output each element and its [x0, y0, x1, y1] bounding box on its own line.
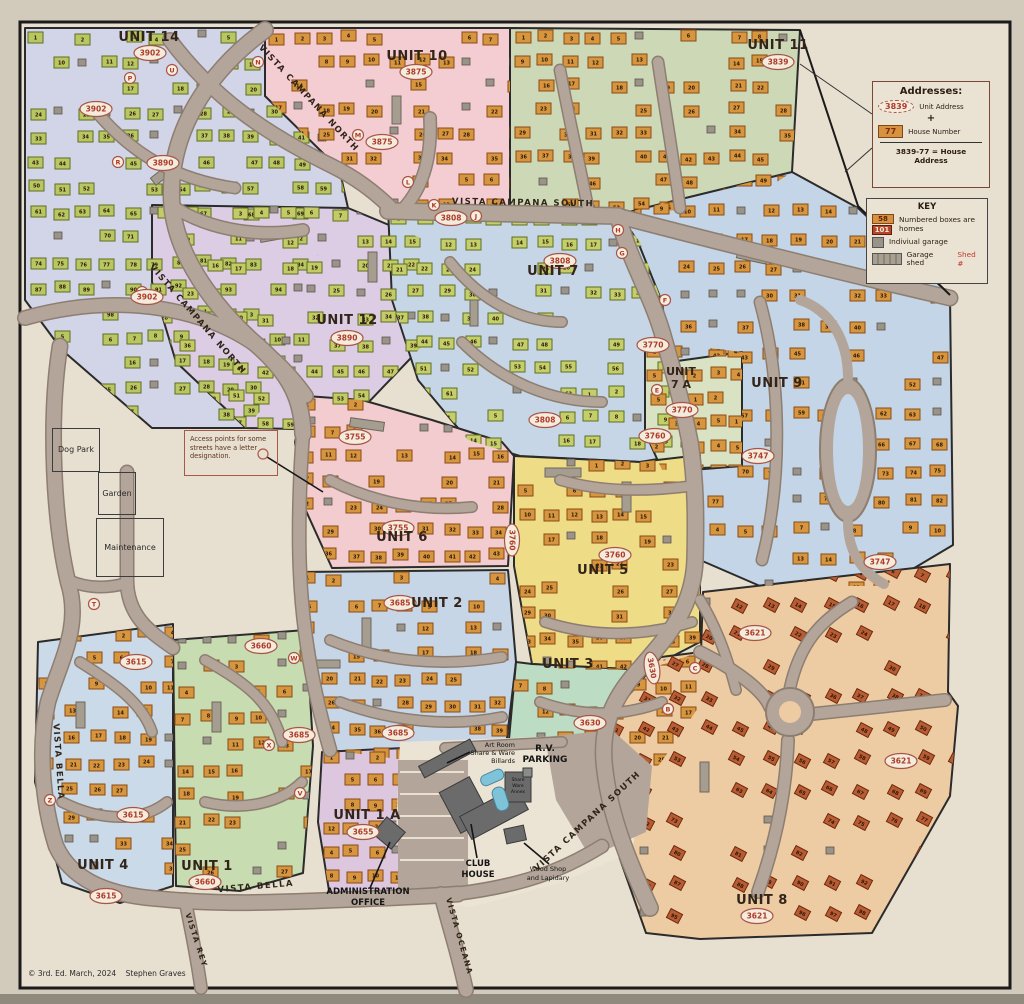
addresses-title: Addresses:	[878, 86, 984, 97]
svg-text:32: 32	[370, 157, 377, 163]
svg-text:4: 4	[260, 211, 264, 217]
address-oval-3747: 3747	[864, 555, 896, 570]
svg-text:88: 88	[59, 285, 66, 291]
svg-text:68: 68	[936, 443, 943, 449]
svg-text:6: 6	[566, 416, 570, 422]
svg-text:10: 10	[274, 338, 281, 344]
svg-text:58: 58	[262, 422, 269, 428]
svg-text:3: 3	[239, 212, 243, 218]
svg-text:28: 28	[463, 133, 470, 139]
svg-text:W: W	[290, 654, 297, 662]
address-oval-3755: 3755	[339, 430, 371, 445]
svg-text:33: 33	[120, 842, 127, 848]
svg-text:C: C	[693, 664, 698, 672]
address-oval-3770: 3770	[666, 403, 698, 418]
svg-text:56: 56	[612, 367, 619, 373]
svg-text:5: 5	[744, 530, 748, 536]
svg-text:12: 12	[571, 513, 578, 519]
svg-text:9: 9	[521, 60, 525, 66]
svg-text:J: J	[474, 212, 477, 220]
svg-text:N: N	[255, 58, 260, 66]
svg-text:9: 9	[353, 876, 357, 882]
svg-text:29: 29	[68, 816, 75, 822]
svg-text:83: 83	[250, 263, 257, 269]
svg-text:X: X	[266, 741, 271, 749]
address-oval-3890: 3890	[147, 156, 179, 171]
svg-text:31: 31	[474, 705, 481, 711]
svg-text:35: 35	[572, 640, 579, 646]
community-map-svg: 1234567891011121314151617181920212223242…	[0, 0, 1024, 1004]
svg-text:20: 20	[688, 86, 695, 92]
svg-text:UNIT 7: UNIT 7	[527, 264, 579, 279]
svg-text:UNIT 1 A: UNIT 1 A	[333, 808, 400, 823]
svg-text:13: 13	[470, 626, 477, 632]
svg-text:3902: 3902	[86, 105, 107, 114]
address-oval-3621: 3621	[741, 909, 773, 924]
svg-text:4: 4	[185, 691, 189, 697]
svg-text:39: 39	[247, 135, 254, 141]
svg-text:7: 7	[589, 414, 593, 420]
svg-text:13: 13	[470, 243, 477, 249]
svg-text:18: 18	[596, 536, 603, 542]
svg-text:41: 41	[449, 555, 456, 561]
address-oval-3747: 3747	[742, 449, 774, 464]
svg-text:63: 63	[909, 413, 916, 419]
unit-address-label: Unit Address	[919, 103, 963, 111]
svg-text:28: 28	[497, 506, 504, 512]
svg-text:23: 23	[667, 563, 674, 569]
svg-text:20: 20	[250, 88, 257, 94]
svg-text:16: 16	[212, 264, 219, 270]
svg-text:6: 6	[374, 778, 378, 784]
svg-text:23: 23	[118, 763, 125, 769]
svg-text:24: 24	[35, 113, 42, 119]
svg-text:Billards: Billards	[491, 757, 516, 765]
svg-text:2: 2	[354, 403, 358, 409]
svg-text:24: 24	[426, 677, 433, 683]
svg-text:9: 9	[95, 682, 99, 688]
svg-text:77: 77	[103, 263, 110, 269]
svg-text:22: 22	[408, 263, 415, 269]
svg-text:36: 36	[374, 730, 381, 736]
svg-text:ADMINISTRATION: ADMINISTRATION	[326, 887, 409, 897]
svg-text:12: 12	[287, 241, 294, 247]
svg-text:53: 53	[337, 397, 344, 403]
svg-text:27: 27	[733, 106, 740, 112]
svg-text:10: 10	[473, 605, 480, 611]
svg-text:33: 33	[880, 294, 887, 300]
svg-text:55: 55	[565, 365, 572, 371]
roundabout-island	[779, 701, 801, 723]
svg-text:17: 17	[548, 538, 555, 544]
svg-text:28: 28	[203, 385, 210, 391]
svg-text:3890: 3890	[153, 159, 174, 168]
svg-text:22: 22	[421, 267, 428, 273]
svg-text:and Lapidary: and Lapidary	[527, 874, 570, 882]
svg-text:35: 35	[491, 157, 498, 163]
svg-text:5: 5	[465, 178, 469, 184]
svg-text:3770: 3770	[672, 406, 693, 415]
svg-text:42: 42	[685, 158, 692, 164]
svg-text:12: 12	[768, 209, 775, 215]
svg-text:39: 39	[248, 409, 255, 415]
garage-sample	[872, 237, 884, 248]
small-building	[523, 768, 532, 777]
svg-text:7: 7	[489, 38, 493, 44]
svg-text:40: 40	[423, 555, 430, 561]
svg-text:12: 12	[445, 243, 452, 249]
svg-text:UNIT 12: UNIT 12	[316, 313, 377, 328]
svg-text:UNIT 8: UNIT 8	[736, 893, 788, 908]
svg-text:21: 21	[354, 677, 361, 683]
svg-text:5: 5	[227, 36, 231, 42]
svg-text:38: 38	[375, 556, 382, 562]
svg-text:UNIT: UNIT	[666, 365, 696, 378]
svg-text:18: 18	[616, 86, 623, 92]
svg-text:34: 34	[544, 637, 551, 643]
svg-text:89: 89	[83, 288, 90, 294]
homes-label: Numbered boxes are homes	[899, 216, 982, 233]
svg-text:3760: 3760	[507, 530, 516, 551]
svg-text:30: 30	[271, 110, 278, 116]
svg-text:29: 29	[519, 131, 526, 137]
svg-text:25: 25	[546, 586, 553, 592]
svg-text:16: 16	[566, 243, 573, 249]
svg-text:10: 10	[58, 61, 65, 67]
svg-text:22: 22	[208, 818, 215, 824]
svg-text:4: 4	[716, 528, 720, 534]
svg-text:33: 33	[614, 293, 621, 299]
svg-text:UNIT 3: UNIT 3	[542, 657, 594, 672]
svg-text:Share & Ware: Share & Ware	[471, 749, 515, 757]
svg-text:73: 73	[882, 472, 889, 478]
address-oval-3630: 3630	[574, 716, 606, 731]
garage-shed	[76, 702, 85, 728]
svg-text:UNIT 9: UNIT 9	[751, 376, 803, 391]
svg-text:19: 19	[343, 107, 350, 113]
svg-text:31: 31	[346, 157, 353, 163]
svg-text:25: 25	[450, 678, 457, 684]
svg-text:12: 12	[328, 827, 335, 833]
garage-label: Indiviual garage	[889, 238, 948, 246]
svg-text:R.V.: R.V.	[535, 744, 555, 754]
svg-text:23: 23	[540, 107, 547, 113]
svg-text:UNIT 14: UNIT 14	[118, 30, 179, 45]
svg-text:11: 11	[325, 453, 332, 459]
svg-text:1: 1	[595, 464, 599, 470]
svg-text:3747: 3747	[870, 558, 891, 567]
svg-text:13: 13	[69, 709, 76, 715]
svg-text:21: 21	[854, 240, 861, 246]
svg-text:82: 82	[936, 499, 943, 505]
svg-text:35: 35	[103, 135, 110, 141]
svg-text:46: 46	[203, 161, 210, 167]
svg-text:23: 23	[229, 821, 236, 827]
svg-text:5: 5	[717, 419, 721, 425]
svg-text:Art Room: Art Room	[485, 741, 515, 749]
svg-text:26: 26	[129, 112, 136, 118]
svg-text:PARKING: PARKING	[523, 755, 568, 765]
svg-text:4: 4	[496, 577, 500, 583]
address-oval-3875: 3875	[366, 135, 398, 150]
address-oval-3808: 3808	[435, 211, 467, 226]
svg-text:Wood Shop: Wood Shop	[530, 865, 567, 873]
svg-text:9: 9	[909, 526, 913, 532]
svg-text:58: 58	[297, 186, 304, 192]
svg-text:3875: 3875	[372, 138, 393, 147]
svg-text:11: 11	[106, 60, 113, 66]
svg-text:14: 14	[385, 240, 392, 246]
svg-text:14: 14	[117, 711, 124, 717]
svg-text:6: 6	[283, 690, 287, 696]
svg-text:26: 26	[385, 293, 392, 299]
svg-text:5: 5	[373, 38, 377, 44]
svg-text:57: 57	[741, 414, 748, 420]
svg-text:74: 74	[910, 471, 917, 477]
svg-text:8: 8	[330, 874, 334, 880]
key-legend: KEY 58 101 Numbered boxes are homes Indi…	[866, 198, 988, 284]
address-oval-3808: 3808	[529, 413, 561, 428]
svg-text:1: 1	[522, 36, 526, 42]
svg-text:3621: 3621	[745, 629, 766, 638]
svg-text:31: 31	[590, 132, 597, 138]
svg-text:45: 45	[794, 352, 801, 358]
svg-text:52: 52	[258, 397, 265, 403]
svg-text:21: 21	[493, 481, 500, 487]
svg-text:12: 12	[592, 61, 599, 67]
svg-text:17: 17	[235, 267, 242, 273]
svg-text:26: 26	[617, 590, 624, 596]
svg-text:4: 4	[697, 422, 701, 428]
svg-text:87: 87	[35, 288, 42, 294]
svg-text:5: 5	[524, 489, 528, 495]
svg-text:6: 6	[490, 178, 494, 184]
svg-text:1: 1	[34, 36, 38, 42]
svg-text:3685: 3685	[289, 731, 310, 740]
garden-area: Garden	[98, 472, 136, 515]
svg-text:26: 26	[739, 265, 746, 271]
svg-text:1: 1	[735, 420, 739, 426]
svg-text:75: 75	[57, 262, 64, 268]
svg-text:7: 7	[331, 431, 335, 437]
svg-text:80: 80	[878, 501, 885, 507]
svg-text:17: 17	[685, 711, 692, 717]
svg-text:25: 25	[66, 787, 73, 793]
svg-text:70: 70	[742, 470, 749, 476]
svg-text:64: 64	[103, 209, 110, 215]
svg-text:34: 34	[441, 157, 448, 163]
svg-text:81: 81	[910, 498, 917, 504]
svg-text:22: 22	[757, 86, 764, 92]
address-oval-3685: 3685	[283, 728, 315, 743]
svg-text:14: 14	[825, 558, 832, 564]
svg-text:31: 31	[540, 289, 547, 295]
svg-text:31: 31	[262, 319, 269, 325]
svg-text:52: 52	[83, 187, 90, 193]
svg-text:5: 5	[657, 398, 661, 404]
svg-text:8: 8	[325, 60, 329, 66]
svg-text:46: 46	[853, 354, 860, 360]
svg-text:3: 3	[570, 37, 574, 43]
svg-text:7: 7	[181, 718, 185, 724]
addresses-legend: Addresses: 3839 Unit Address + 77 House …	[872, 81, 990, 188]
svg-text:30: 30	[250, 386, 257, 392]
svg-text:15: 15	[208, 770, 215, 776]
svg-text:17: 17	[590, 243, 597, 249]
svg-text:39: 39	[689, 636, 696, 642]
svg-text:30: 30	[449, 705, 456, 711]
svg-text:50: 50	[33, 184, 40, 190]
svg-text:11: 11	[298, 338, 305, 344]
garage-shed	[212, 702, 221, 732]
svg-text:38: 38	[223, 413, 230, 419]
svg-text:47: 47	[387, 370, 394, 376]
community-map-page: 1234567891011121314151617181920212223242…	[0, 0, 1024, 1004]
svg-text:Ware: Ware	[512, 783, 524, 789]
svg-text:16: 16	[543, 84, 550, 90]
svg-text:48: 48	[541, 343, 548, 349]
svg-text:Share: Share	[512, 777, 525, 783]
svg-text:10: 10	[660, 687, 667, 693]
address-oval-3615: 3615	[117, 808, 149, 823]
svg-text:16: 16	[129, 361, 136, 367]
svg-text:43: 43	[708, 157, 715, 163]
svg-text:94: 94	[275, 288, 282, 294]
svg-text:3615: 3615	[123, 811, 144, 820]
svg-text:32: 32	[449, 528, 456, 534]
svg-text:34: 34	[82, 135, 89, 141]
svg-text:49: 49	[299, 163, 306, 169]
svg-text:UNIT 6: UNIT 6	[376, 530, 428, 545]
svg-text:81: 81	[200, 259, 207, 265]
svg-text:69: 69	[297, 212, 304, 218]
svg-text:28: 28	[780, 109, 787, 115]
svg-text:6: 6	[686, 660, 690, 666]
svg-text:15: 15	[640, 515, 647, 521]
maintenance-area: Maintenance	[96, 518, 164, 577]
svg-text:36: 36	[520, 155, 527, 161]
svg-text:10: 10	[934, 529, 941, 535]
svg-text:6: 6	[355, 605, 359, 611]
svg-text:3685: 3685	[388, 729, 409, 738]
svg-text:11: 11	[567, 60, 574, 66]
svg-text:25: 25	[333, 289, 340, 295]
svg-text:20: 20	[634, 736, 641, 742]
svg-text:5: 5	[494, 414, 498, 420]
svg-text:63: 63	[79, 210, 86, 216]
svg-text:5: 5	[349, 849, 353, 855]
svg-text:17: 17	[127, 87, 134, 93]
svg-text:P: P	[128, 74, 133, 82]
svg-text:37: 37	[542, 154, 549, 160]
svg-text:2: 2	[332, 579, 336, 585]
svg-text:76: 76	[80, 263, 87, 269]
svg-text:18: 18	[177, 87, 184, 93]
svg-text:49: 49	[760, 179, 767, 185]
svg-text:54: 54	[539, 366, 546, 372]
svg-text:H: H	[615, 226, 620, 234]
svg-text:3: 3	[646, 464, 650, 470]
svg-text:39: 39	[496, 729, 503, 735]
svg-text:F: F	[663, 296, 667, 304]
svg-text:3660: 3660	[195, 878, 216, 887]
svg-text:19: 19	[644, 540, 651, 546]
svg-text:10: 10	[145, 686, 152, 692]
svg-text:37: 37	[742, 326, 749, 332]
svg-text:14: 14	[825, 210, 832, 216]
svg-text:22: 22	[93, 764, 100, 770]
svg-text:48: 48	[273, 161, 280, 167]
svg-text:36: 36	[685, 325, 692, 331]
svg-text:3808: 3808	[535, 416, 556, 425]
svg-text:3685: 3685	[390, 599, 411, 608]
svg-text:61: 61	[35, 210, 42, 216]
svg-text:27: 27	[281, 870, 288, 876]
svg-text:47: 47	[660, 178, 667, 184]
svg-text:38: 38	[422, 315, 429, 321]
svg-text:3615: 3615	[126, 658, 147, 667]
svg-text:39: 39	[410, 344, 417, 350]
svg-text:3: 3	[717, 371, 721, 377]
svg-text:3875: 3875	[406, 68, 427, 77]
plus-sign: +	[878, 115, 984, 123]
svg-text:18: 18	[766, 239, 773, 245]
svg-text:3: 3	[235, 665, 239, 671]
svg-text:21: 21	[396, 268, 403, 274]
svg-text:33: 33	[35, 137, 42, 143]
svg-text:2: 2	[544, 34, 548, 40]
svg-text:16: 16	[231, 769, 238, 775]
svg-text:29: 29	[425, 705, 432, 711]
svg-text:5: 5	[617, 37, 621, 43]
svg-text:34: 34	[166, 842, 173, 848]
svg-text:17: 17	[95, 734, 102, 740]
svg-text:21: 21	[662, 736, 669, 742]
svg-text:45: 45	[757, 158, 764, 164]
svg-text:Z: Z	[48, 796, 53, 804]
svg-text:21: 21	[735, 84, 742, 90]
svg-text:7: 7	[133, 337, 137, 343]
access-note: Access points for some streets have a le…	[184, 430, 278, 476]
svg-text:3615: 3615	[96, 892, 117, 901]
address-oval-3902: 3902	[131, 290, 163, 305]
svg-text:4: 4	[347, 34, 351, 40]
svg-text:35: 35	[784, 134, 791, 140]
svg-text:6: 6	[687, 34, 691, 40]
garage-shed	[700, 762, 709, 792]
svg-text:43: 43	[741, 356, 748, 362]
svg-text:12: 12	[422, 627, 429, 633]
svg-text:9: 9	[346, 60, 350, 66]
svg-text:39: 39	[397, 553, 404, 559]
svg-text:16: 16	[68, 736, 75, 742]
svg-text:27: 27	[179, 387, 186, 393]
svg-text:3770: 3770	[643, 341, 664, 350]
svg-text:14: 14	[182, 770, 189, 776]
svg-text:14: 14	[516, 241, 523, 247]
svg-text:15: 15	[415, 83, 422, 89]
svg-text:51: 51	[233, 394, 240, 400]
svg-text:37: 37	[201, 134, 208, 140]
house-number-box: 77	[878, 125, 903, 138]
address-oval-3875: 3875	[400, 65, 432, 80]
svg-text:30: 30	[766, 294, 773, 300]
svg-text:19: 19	[373, 480, 380, 486]
svg-text:17: 17	[589, 440, 596, 446]
svg-text:23: 23	[187, 292, 194, 298]
svg-text:8: 8	[543, 687, 547, 693]
svg-text:8: 8	[615, 415, 619, 421]
